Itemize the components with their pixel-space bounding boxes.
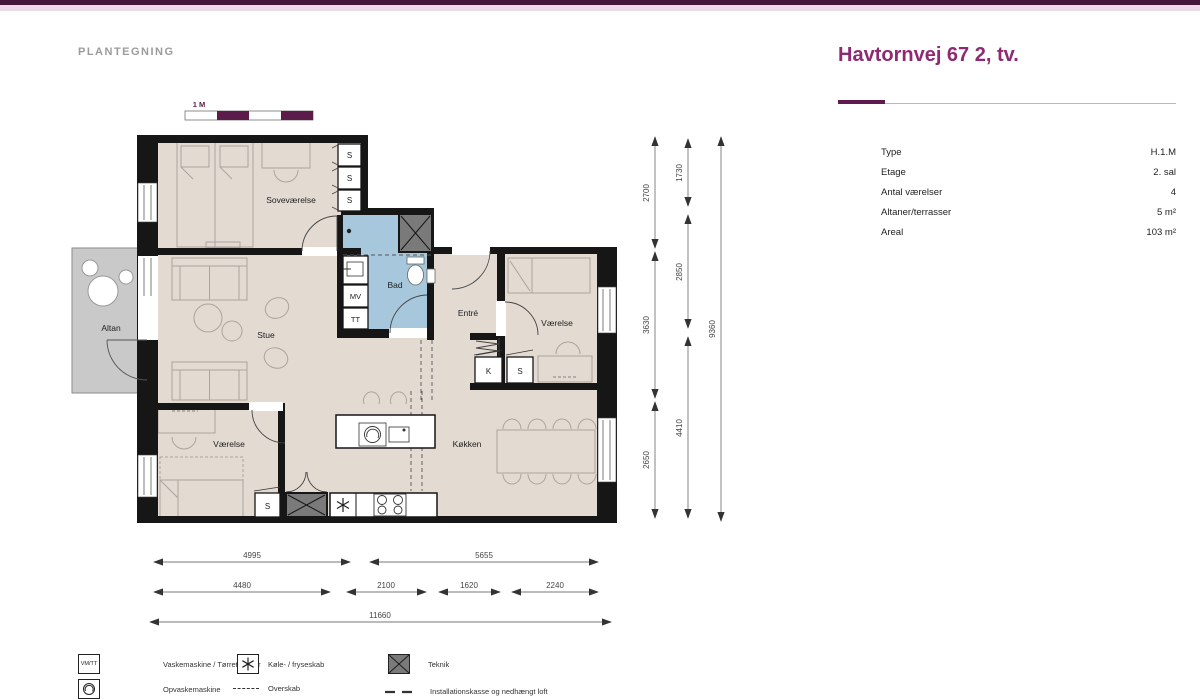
legend-label: Køle- / fryseskab (268, 660, 324, 669)
dim-v-3630: 3630 (642, 316, 651, 334)
dim-h-1620: 1620 (460, 581, 478, 590)
floor-plan-drawing: 1 M (0, 0, 1200, 697)
technic-square (286, 493, 327, 517)
long-dash-icon (385, 682, 413, 700)
shower-technic-square (399, 214, 432, 252)
room-label-altan: Altan (101, 323, 121, 333)
legend-item-technic: Teknik (388, 654, 449, 674)
dim-v-9360: 9360 (708, 320, 717, 338)
window-right-koekken (598, 418, 616, 482)
mv-label: MV (350, 292, 361, 301)
dishwasher-icon (78, 679, 100, 699)
wall-sink (427, 269, 435, 283)
shower-head (347, 229, 351, 233)
dim-h-2240: 2240 (546, 581, 564, 590)
bath-sink-box (343, 256, 368, 284)
legend-item-freezer: Køle- / fryseskab (237, 654, 324, 674)
legend-label: Opvaskemaskine (163, 685, 221, 694)
legend-label: Overskab (268, 684, 300, 693)
room-label-koekken: Køkken (453, 439, 482, 449)
window-right-vaerelse (598, 287, 616, 333)
freezer-asterisk-icon (237, 654, 259, 674)
technic-box-icon (388, 654, 410, 674)
room-label-soevaerelse: Soveværelse (266, 195, 316, 205)
dryer-box: TT (343, 308, 368, 329)
dim-h-2100: 2100 (377, 581, 395, 590)
dim-v-2850: 2850 (675, 263, 684, 281)
closet-k-label: K (486, 367, 492, 376)
legend-label: Teknik (428, 660, 449, 669)
kitchen-counter (330, 493, 437, 517)
washing-machine-box: MV (343, 285, 368, 307)
room-label-stue: Stue (257, 330, 275, 340)
kitchen-island (336, 415, 435, 448)
legend-item-overskab: Overskab (233, 684, 300, 693)
legend-item-dishwasher: Opvaskemaskine (78, 679, 221, 699)
room-label-bad: Bad (387, 280, 402, 290)
dim-h-4480: 4480 (233, 581, 251, 590)
room-label-entre: Entré (458, 308, 479, 318)
legend-item-washer-dryer: VM/TT Vaskemaskine / Tørretumbler (78, 654, 261, 674)
window-left-vaerelse (138, 455, 157, 497)
window-left-soevaerelse (138, 183, 157, 222)
closet-s-label: S (347, 196, 352, 205)
room-label-vaerelse-bottom: Værelse (213, 439, 245, 449)
legend-label: Installationskasse og nedhængt loft (430, 687, 548, 696)
dim-v-1730: 1730 (675, 164, 684, 182)
scale-bar-label: 1 M (193, 100, 206, 109)
toilet (407, 257, 424, 285)
closet-s-label: S (517, 367, 522, 376)
closet-s-label: S (347, 151, 352, 160)
washer-dryer-box-icon: VM/TT (78, 654, 100, 674)
room-label-vaerelse-top: Værelse (541, 318, 573, 328)
dim-v-2700: 2700 (642, 184, 651, 202)
legend-item-installation: Installationskasse og nedhængt loft (385, 682, 548, 700)
dim-h-5655: 5655 (475, 551, 493, 560)
dim-h-11660: 11660 (369, 611, 391, 620)
dim-v-4410: 4410 (675, 419, 684, 437)
tt-label: TT (351, 315, 361, 324)
balcony (72, 248, 139, 393)
dim-h-4995: 4995 (243, 551, 261, 560)
dim-v-2650: 2650 (642, 451, 651, 469)
scale-bar: 1 M (185, 100, 313, 120)
closet-s-label: S (265, 502, 270, 511)
closet-s-label: S (347, 174, 352, 183)
vmtt-symbol-text: VM/TT (81, 661, 98, 667)
dashed-line-icon (233, 688, 259, 689)
